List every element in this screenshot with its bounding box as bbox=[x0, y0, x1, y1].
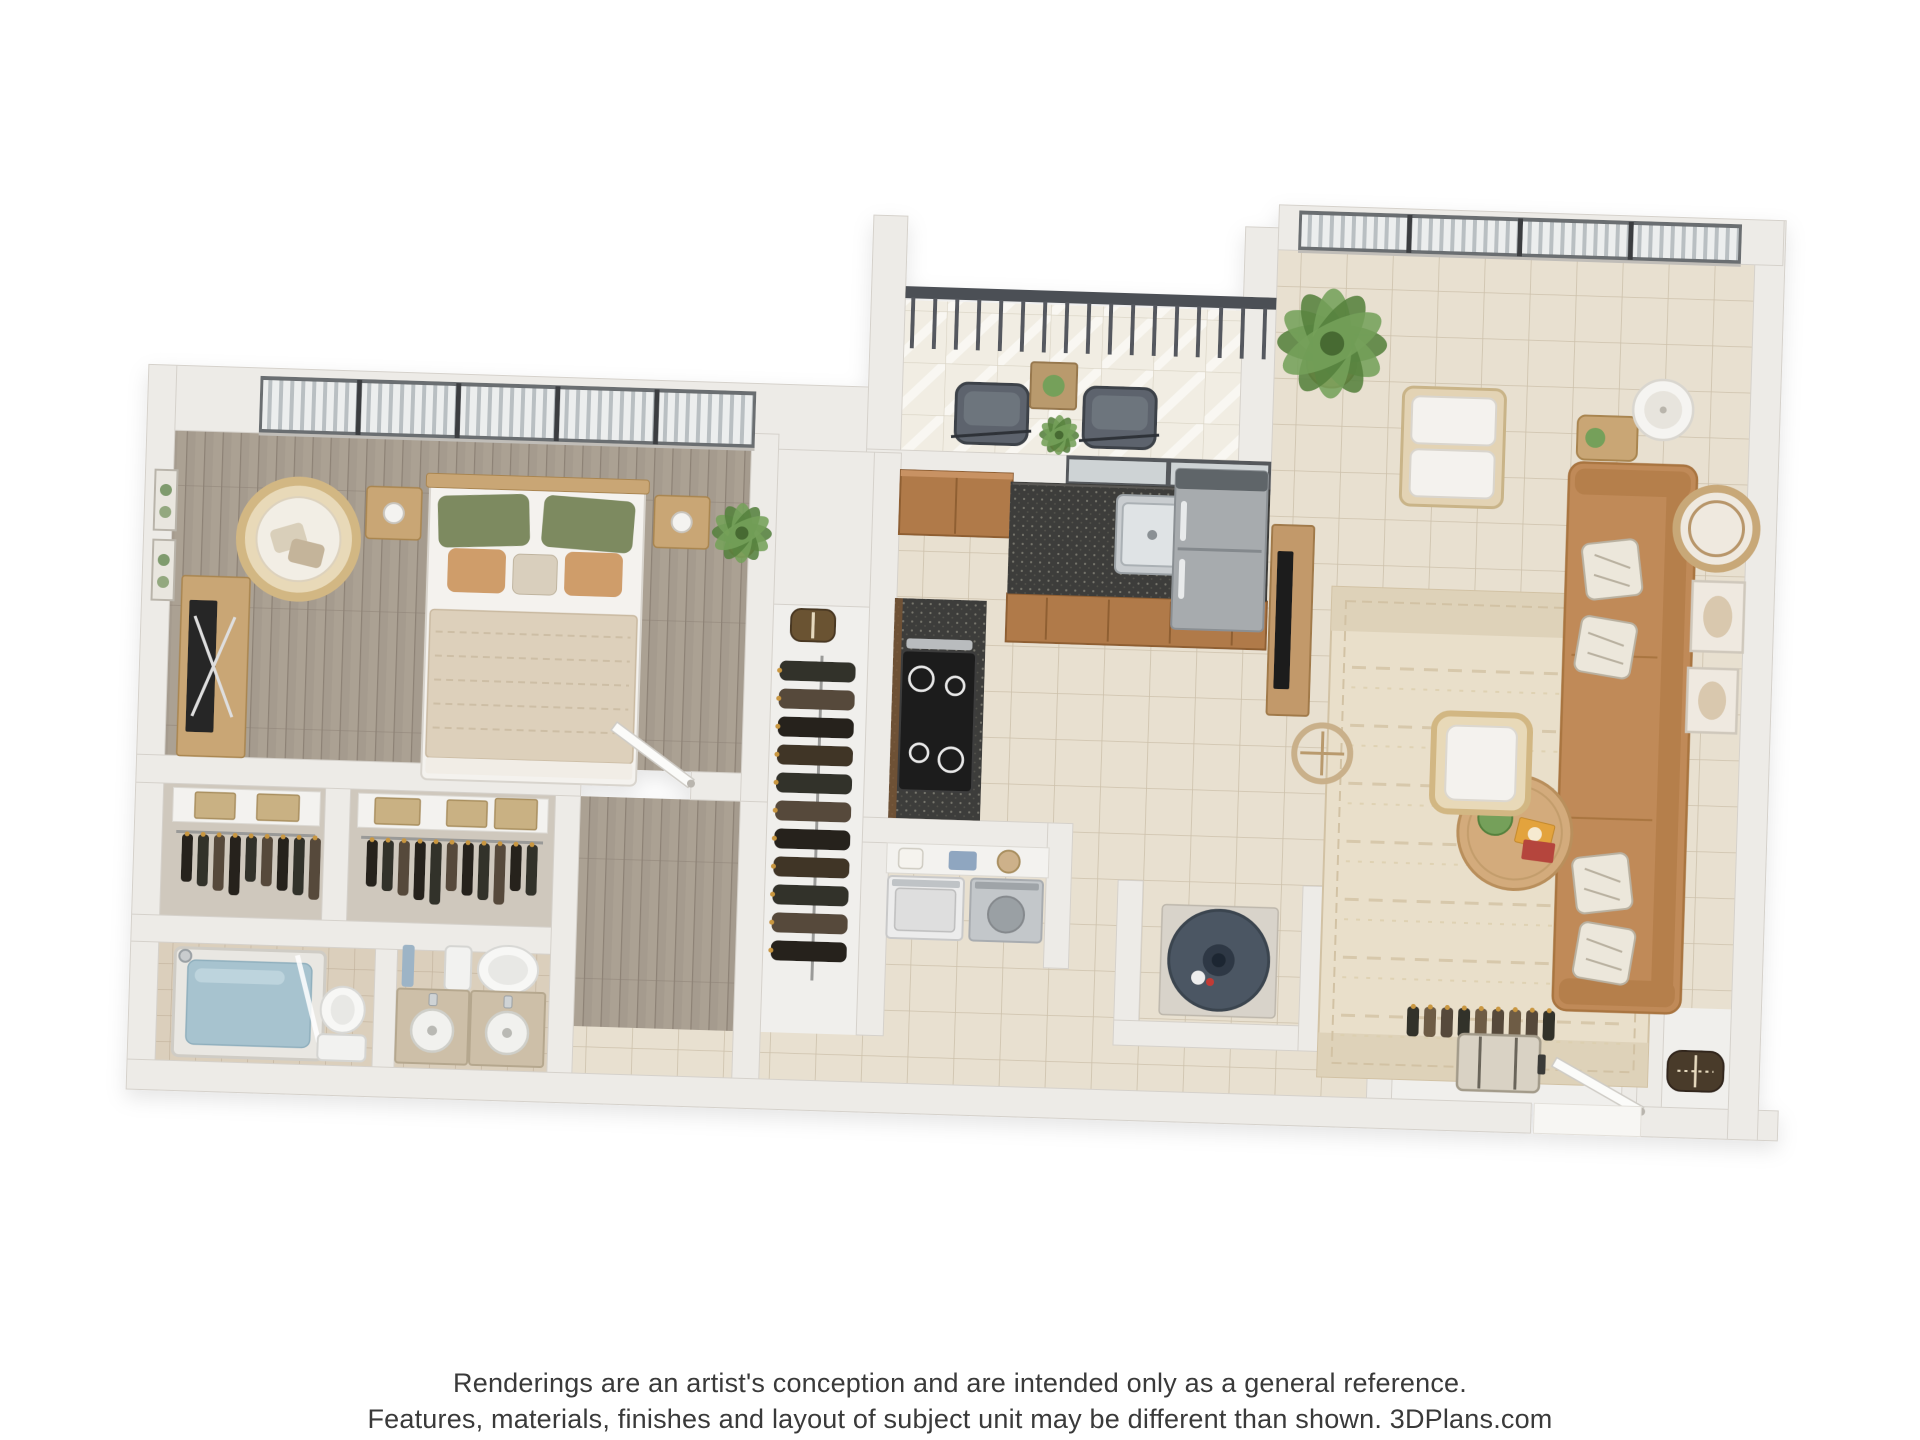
fridge-top bbox=[1175, 469, 1268, 492]
hanging-garment bbox=[197, 834, 210, 886]
window-mullion bbox=[457, 383, 459, 438]
storage-box bbox=[375, 798, 421, 825]
wardrobe-clothes bbox=[767, 654, 856, 981]
railing-baluster bbox=[1110, 304, 1112, 355]
hanging-garment bbox=[525, 844, 538, 895]
bed-blanket bbox=[426, 609, 638, 763]
fridge-handle bbox=[1178, 559, 1185, 599]
wall-wardrobe-top-block bbox=[774, 449, 875, 607]
balcony-chair-2 bbox=[1079, 387, 1161, 449]
hanging-garment bbox=[292, 837, 305, 895]
bed-pillow-tan bbox=[564, 552, 623, 598]
hanging-garment bbox=[228, 835, 241, 895]
shower-tub bbox=[172, 948, 325, 1061]
railing-baluster bbox=[978, 299, 980, 350]
table-lamp bbox=[384, 503, 405, 524]
hanging-garment bbox=[461, 842, 474, 895]
railing-baluster bbox=[1264, 308, 1266, 359]
hanging-garment bbox=[771, 912, 848, 934]
toilet-main bbox=[317, 986, 367, 1061]
railing-baluster bbox=[1176, 306, 1178, 357]
railing-baluster bbox=[934, 298, 936, 349]
hanging-garment bbox=[772, 884, 849, 906]
storage-box bbox=[257, 794, 300, 821]
wall-frame-2 bbox=[1686, 668, 1738, 734]
laundry-basket bbox=[997, 850, 1020, 873]
stove bbox=[898, 638, 977, 792]
water-heater bbox=[1159, 904, 1278, 1018]
screenshot-canvas: Renderings are an artist's conception an… bbox=[0, 0, 1920, 1440]
faucet bbox=[504, 996, 512, 1008]
balcony-chair-1 bbox=[951, 383, 1033, 445]
entry-threshold bbox=[1533, 1103, 1641, 1136]
toilet-tank bbox=[317, 1034, 366, 1061]
disclaimer-caption: Renderings are an artist's conception an… bbox=[0, 1368, 1920, 1440]
railing-baluster bbox=[1242, 308, 1244, 359]
fridge bbox=[1171, 469, 1268, 632]
hanging-garment bbox=[397, 840, 410, 895]
bed bbox=[417, 473, 650, 786]
railing-baluster bbox=[1088, 303, 1090, 354]
hanging-garment bbox=[429, 841, 442, 904]
hanging-garment bbox=[308, 838, 321, 900]
basket-pattern bbox=[813, 612, 814, 638]
suitcase-handle bbox=[1537, 1054, 1546, 1074]
window-mullion bbox=[1409, 215, 1410, 253]
nightstand-right bbox=[653, 495, 710, 549]
shower-head bbox=[179, 950, 191, 962]
floor-plan-3d-rendering bbox=[0, 0, 1920, 1440]
hanging-garment bbox=[1406, 1006, 1419, 1036]
patio-chair-cushion bbox=[963, 391, 1020, 427]
water-highlight bbox=[195, 968, 285, 985]
sofa-pillow bbox=[1571, 852, 1633, 914]
hanging-garment bbox=[776, 772, 853, 794]
hanging-garment bbox=[778, 688, 855, 710]
storage-box bbox=[494, 798, 537, 829]
hanging-garment bbox=[778, 716, 855, 738]
armchair-white bbox=[1400, 387, 1506, 508]
wall-art-1 bbox=[154, 470, 178, 531]
fridge-handle bbox=[1180, 501, 1187, 541]
duffel-bag bbox=[1667, 1050, 1724, 1092]
hanging-garment bbox=[493, 843, 506, 904]
floor-surface bbox=[573, 796, 740, 1031]
hanging-garment bbox=[212, 835, 225, 891]
wall-laundry-right bbox=[1043, 823, 1073, 969]
sofa-pillow bbox=[1572, 921, 1637, 986]
sofa-pillow bbox=[1573, 615, 1638, 680]
suitcase-strap bbox=[1515, 1038, 1517, 1090]
nightstand-left bbox=[366, 486, 423, 540]
detergent-jug bbox=[898, 848, 923, 869]
sofa-pillow bbox=[1581, 539, 1643, 601]
window-mullion bbox=[1630, 222, 1631, 260]
railing-baluster bbox=[1132, 304, 1134, 355]
tv-console bbox=[1266, 525, 1314, 716]
wall-bath-divider bbox=[372, 949, 398, 1068]
range-front bbox=[906, 638, 972, 650]
dryer bbox=[969, 878, 1043, 942]
armchair-cushion bbox=[1411, 396, 1496, 446]
stove-cooktop bbox=[898, 650, 976, 792]
hanging-garment bbox=[445, 842, 458, 891]
vanity-sink-2 bbox=[469, 991, 545, 1067]
wall-art-2 bbox=[151, 540, 175, 601]
hanging-garment bbox=[774, 828, 851, 850]
hanging-garment bbox=[510, 844, 522, 891]
detergent-box bbox=[948, 851, 977, 871]
disclaimer-line-1: Renderings are an artist's conception an… bbox=[0, 1368, 1920, 1398]
hanging-garment bbox=[245, 836, 257, 882]
railing-baluster bbox=[1022, 301, 1024, 352]
towel bbox=[401, 945, 414, 987]
kitchen-upper-cabinets bbox=[899, 470, 1013, 537]
duffel-pattern bbox=[1695, 1055, 1696, 1087]
floor-plan-scene bbox=[0, 0, 1920, 1440]
wall-frame-1 bbox=[1691, 581, 1745, 653]
balcony-table bbox=[1030, 362, 1077, 409]
storage-box bbox=[447, 800, 488, 827]
hanging-garment bbox=[276, 837, 289, 891]
disclaimer-line-2: Features, materials, finishes and layout… bbox=[0, 1404, 1920, 1434]
hanging-garment bbox=[1440, 1007, 1453, 1037]
armchair-cushion bbox=[1409, 449, 1494, 499]
towel-hook bbox=[401, 945, 414, 987]
hanging-garment bbox=[381, 840, 394, 891]
railing-baluster bbox=[1044, 302, 1046, 353]
laundry-shelf bbox=[886, 843, 1049, 878]
table-lamp bbox=[671, 512, 692, 533]
art-frame bbox=[151, 540, 175, 601]
window-mullion bbox=[1168, 460, 1169, 486]
floor-lamp bbox=[1632, 379, 1694, 441]
hanging-egg-chair bbox=[239, 479, 359, 599]
hanging-garment bbox=[1423, 1007, 1436, 1037]
rattan-chair bbox=[1431, 713, 1530, 814]
railing-baluster bbox=[956, 299, 958, 350]
sofa-side-table bbox=[1577, 415, 1638, 461]
window-mullion bbox=[1519, 218, 1520, 256]
patio-chair-cushion bbox=[1091, 395, 1148, 431]
cabinet-divider bbox=[1046, 598, 1047, 640]
hanging-garment bbox=[775, 800, 852, 822]
cabinet-divider bbox=[1108, 600, 1109, 642]
rattan-chair-cushion bbox=[1445, 725, 1517, 801]
bed-pillow-accent bbox=[512, 554, 557, 595]
bed-pillow-green bbox=[541, 494, 637, 553]
hanging-garment bbox=[181, 834, 194, 882]
hanging-garment bbox=[777, 744, 854, 766]
hoop-spoke bbox=[1322, 731, 1323, 775]
washer bbox=[886, 876, 964, 940]
entry-threshold bbox=[1533, 1103, 1641, 1136]
railing-baluster bbox=[1066, 302, 1068, 353]
faucet bbox=[429, 993, 437, 1005]
toilet-guest bbox=[444, 944, 538, 995]
suitcase-strap bbox=[1479, 1037, 1481, 1089]
art-frame bbox=[154, 470, 178, 531]
hanging-garment bbox=[770, 940, 847, 962]
railing-baluster bbox=[912, 297, 914, 348]
dryer-door bbox=[987, 896, 1024, 933]
window-mullion bbox=[655, 389, 657, 444]
wardrobe-basket bbox=[791, 609, 836, 642]
hanging-garment bbox=[366, 839, 378, 886]
window-mullion bbox=[358, 380, 360, 435]
round-jute-mirror bbox=[1675, 487, 1757, 569]
floor-hallway bbox=[573, 796, 740, 1031]
hanging-garment bbox=[261, 836, 274, 886]
sofa-armrest bbox=[1575, 468, 1692, 498]
suitcase bbox=[1457, 1034, 1541, 1093]
bed-pillow-green bbox=[438, 494, 531, 548]
vanity-sink-1 bbox=[395, 988, 469, 1064]
washer-lid bbox=[894, 888, 955, 932]
hanging-garment bbox=[1542, 1010, 1555, 1040]
railing-baluster bbox=[1198, 306, 1200, 357]
floor-hoop-decor bbox=[1293, 725, 1351, 783]
railing-baluster bbox=[1000, 300, 1002, 351]
hanging-garment bbox=[773, 856, 850, 878]
railing-baluster bbox=[1154, 305, 1156, 356]
wall-mirror bbox=[1675, 487, 1757, 569]
storage-box bbox=[195, 792, 236, 819]
hanging-garment bbox=[413, 841, 426, 900]
wall-closet-divider bbox=[321, 788, 350, 924]
toilet-tank bbox=[444, 946, 471, 991]
window-mullion bbox=[556, 386, 558, 441]
bed-pillow-tan bbox=[447, 548, 506, 594]
railing-baluster bbox=[1220, 307, 1222, 358]
hanging-garment bbox=[477, 843, 490, 900]
media-console bbox=[177, 576, 251, 758]
hanging-garment bbox=[779, 660, 856, 682]
